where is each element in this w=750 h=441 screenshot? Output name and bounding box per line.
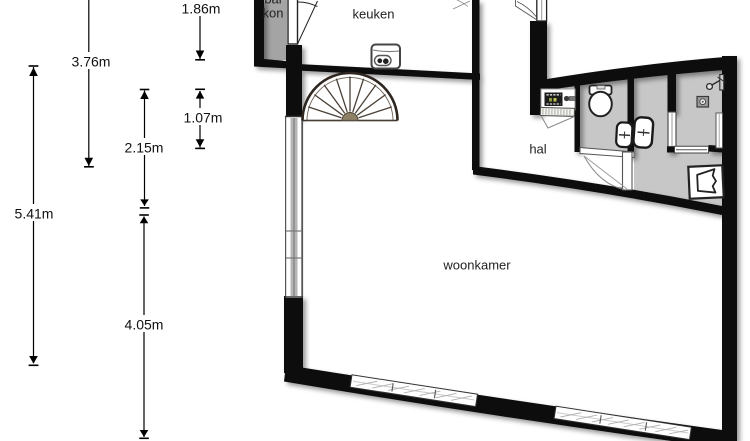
svg-text:1.86m: 1.86m — [182, 1, 221, 17]
svg-text:kon: kon — [263, 6, 284, 21]
svg-text:4.05m: 4.05m — [125, 317, 164, 333]
svg-text:1.07m: 1.07m — [184, 110, 223, 126]
svg-text:keuken: keuken — [353, 7, 395, 22]
svg-text:woonkamer: woonkamer — [442, 258, 511, 273]
svg-text:2.15m: 2.15m — [125, 140, 164, 156]
svg-text:5.41m: 5.41m — [15, 206, 54, 222]
svg-text:3.76m: 3.76m — [72, 54, 111, 70]
svg-text:hal: hal — [529, 142, 546, 157]
